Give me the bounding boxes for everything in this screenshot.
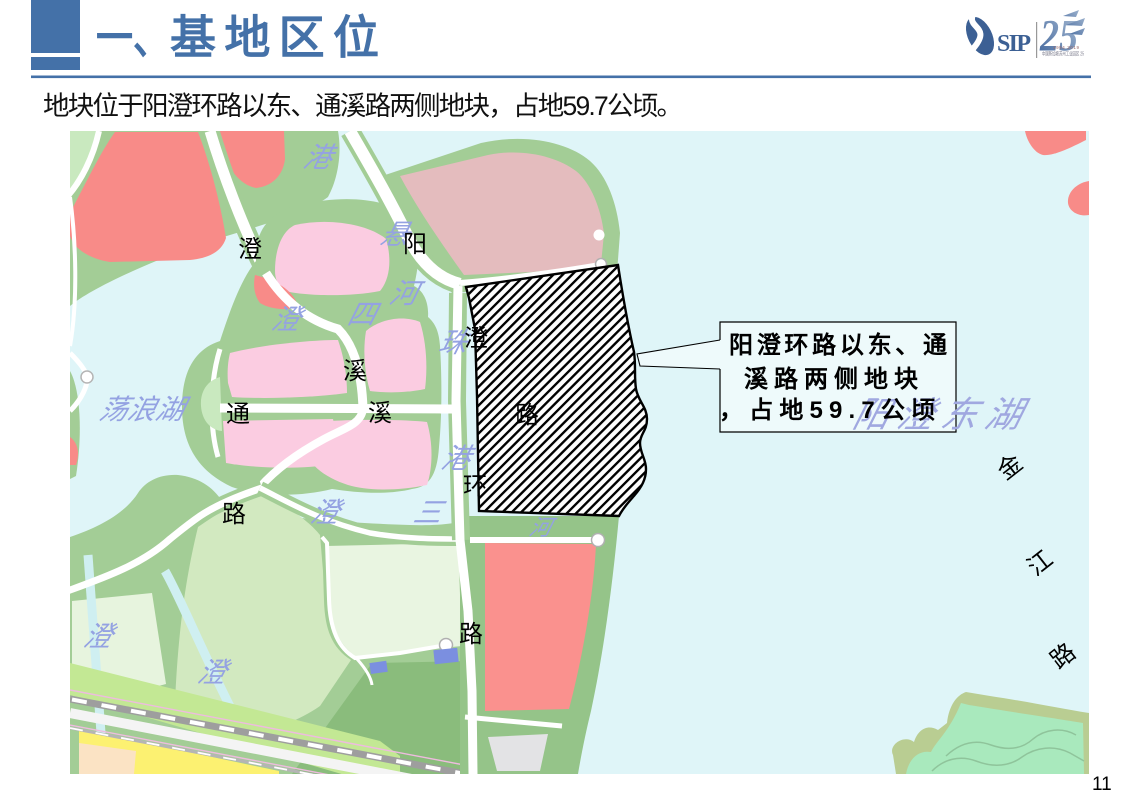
svg-text:地块位于阳澄环路以东、通溪路两侧地块，占地59.7公顷。: 地块位于阳澄环路以东、通溪路两侧地块，占地59.7公顷。	[43, 91, 683, 121]
svg-text:澄: 澄	[464, 325, 488, 352]
svg-text:溪: 溪	[368, 400, 392, 427]
svg-text:一、: 一、	[96, 12, 170, 64]
svg-text:11: 11	[1092, 774, 1112, 794]
svg-text:1994 2019: 1994 2019	[1053, 45, 1079, 50]
svg-text:路: 路	[222, 501, 246, 528]
svg-text:路: 路	[459, 621, 483, 648]
svg-text:中国新加坡苏州工业园区 25: 中国新加坡苏州工业园区 25	[1042, 51, 1084, 58]
svg-text:荡浪湖: 荡浪湖	[96, 394, 192, 426]
svg-text:阳: 阳	[403, 231, 427, 258]
svg-text:路: 路	[515, 402, 539, 429]
svg-text:SIP: SIP	[997, 31, 1031, 57]
svg-text:溪: 溪	[343, 358, 367, 385]
svg-text:环: 环	[463, 473, 487, 500]
svg-text:通: 通	[226, 401, 250, 428]
svg-text:澄: 澄	[238, 236, 262, 263]
svg-text:基地区位: 基地区位	[170, 12, 379, 64]
